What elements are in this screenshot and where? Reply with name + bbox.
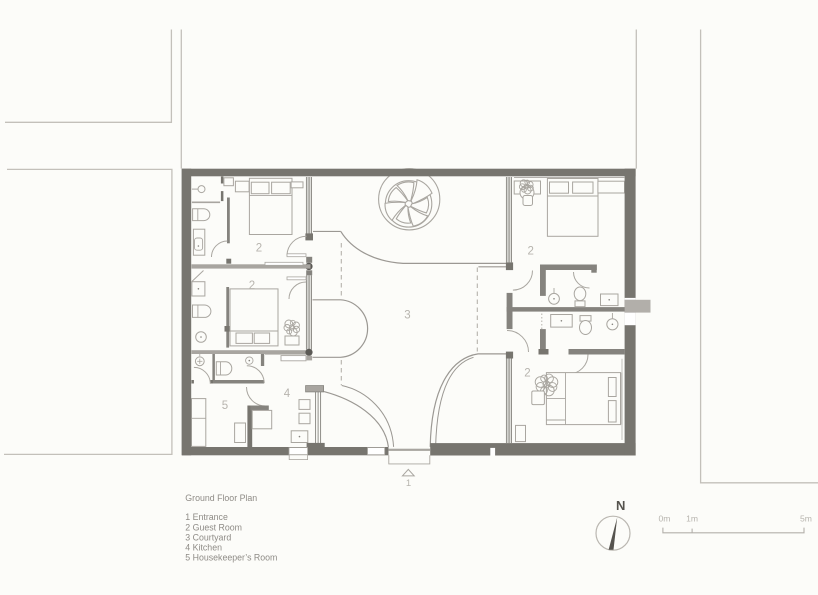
svg-text:1 Entrance: 1 Entrance (185, 512, 228, 522)
svg-text:3 Courtyard: 3 Courtyard (185, 532, 231, 542)
svg-text:1m: 1m (686, 513, 698, 523)
svg-text:5m: 5m (800, 513, 812, 523)
svg-text:4 Kitchen: 4 Kitchen (185, 543, 222, 553)
svg-text:2: 2 (249, 280, 255, 292)
svg-text:2: 2 (256, 243, 262, 255)
svg-text:2 Guest Room: 2 Guest Room (185, 522, 242, 532)
svg-text:1: 1 (406, 478, 411, 489)
svg-text:N: N (616, 498, 625, 513)
svg-text:5 Housekeeper’s Room: 5 Housekeeper’s Room (185, 553, 277, 563)
svg-text:0m: 0m (659, 513, 671, 523)
svg-text:4: 4 (284, 388, 291, 400)
svg-text:Ground Floor Plan: Ground Floor Plan (185, 493, 257, 503)
svg-text:5: 5 (222, 400, 228, 412)
svg-text:2: 2 (524, 368, 530, 380)
svg-text:2: 2 (527, 246, 533, 258)
svg-text:3: 3 (404, 309, 410, 321)
